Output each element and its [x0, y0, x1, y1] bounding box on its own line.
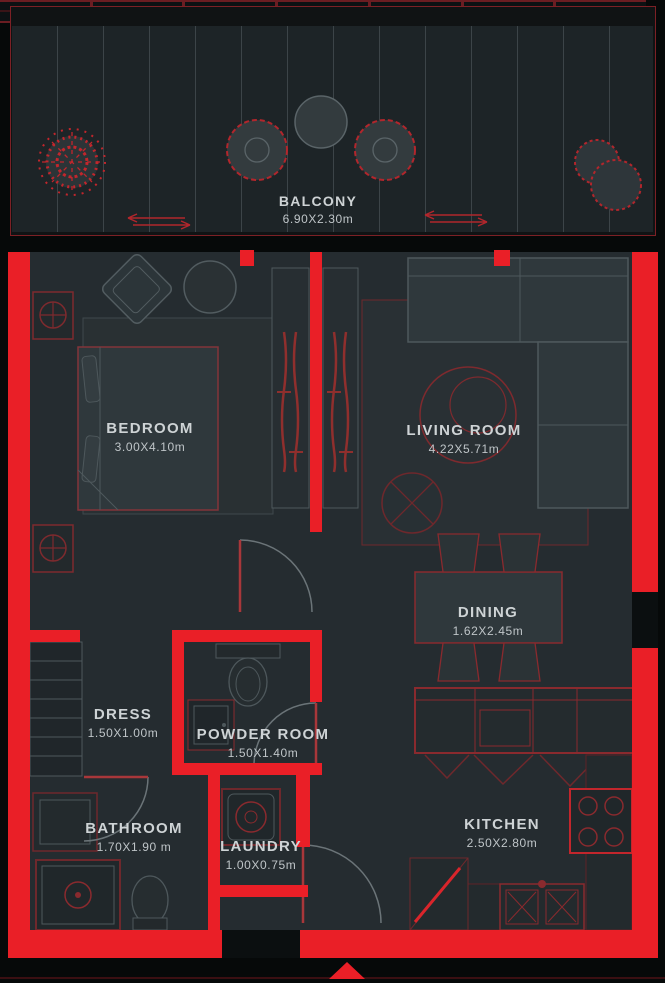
stove-icon: [570, 789, 632, 853]
wall-left: [8, 252, 30, 958]
room-dims: 6.90X2.30m: [279, 212, 357, 226]
shower-icon: [36, 860, 120, 930]
potted-plant-icon: [355, 120, 415, 180]
room-dims: 1.70X1.90 m: [85, 840, 183, 854]
room-dims: 3.00X4.10m: [106, 440, 193, 454]
wardrobe: [272, 268, 309, 508]
wall-powder-top: [172, 630, 322, 642]
room-label-kitchen: KITCHEN 2.50X2.80m: [464, 816, 540, 850]
door-arc: [303, 845, 381, 923]
toilet-icon: [216, 644, 280, 706]
room-label-powder-room: POWDER ROOM 1.50X1.40m: [197, 726, 330, 760]
room-label-laundry: LAUNDRY 1.00X0.75m: [220, 838, 302, 872]
room-name: POWDER ROOM: [197, 726, 330, 743]
room-dims: 1.62X2.45m: [453, 624, 524, 638]
shrub-icon: [575, 140, 641, 210]
sink-icon: [468, 880, 584, 930]
wall-powder-bottom: [172, 763, 322, 775]
room-name: DINING: [453, 604, 524, 621]
wall-powder-left: [172, 630, 184, 775]
room-name: BEDROOM: [106, 420, 193, 437]
room-dims: 2.50X2.80m: [464, 836, 540, 850]
entrance-gap: [222, 930, 300, 958]
room-name: KITCHEN: [464, 816, 540, 833]
wall-dress-stub: [30, 630, 80, 642]
room-dims: 1.50X1.40m: [197, 746, 330, 760]
nightstand: [33, 525, 73, 572]
room-name: BALCONY: [279, 193, 357, 209]
upper-cabinet-marks: [425, 755, 600, 786]
wall-entry-pier: [296, 775, 310, 847]
kitchen-counter: [415, 688, 637, 753]
room-label-balcony: BALCONY 6.90X2.30m: [279, 193, 357, 226]
wall-middle: [310, 252, 322, 532]
floor-plan: BALCONY 6.90X2.30m BEDROOM 3.00X4.10m LI…: [0, 0, 665, 983]
wall-laundry-bottom: [208, 885, 308, 897]
room-dims: 4.22X5.71m: [406, 442, 521, 456]
window-gap-right: [632, 592, 658, 648]
room-label-dining: DINING 1.62X2.45m: [453, 604, 524, 638]
side-table: [184, 261, 236, 313]
wall-pier: [240, 250, 254, 266]
wall-bottom: [8, 930, 658, 958]
nightstand: [33, 292, 73, 339]
washer-icon: [222, 789, 280, 845]
planter-icon: [295, 96, 347, 148]
room-dims: 1.50X1.00m: [88, 726, 159, 740]
armchair: [100, 252, 174, 326]
room-label-dress: DRESS 1.50X1.00m: [88, 706, 159, 740]
room-label-living-room: LIVING ROOM 4.22X5.71m: [406, 422, 521, 456]
room-name: DRESS: [88, 706, 159, 723]
corner-cabinet: [410, 858, 468, 930]
door-arc: [240, 540, 312, 612]
room-name: LAUNDRY: [220, 838, 302, 855]
room-label-bedroom: BEDROOM 3.00X4.10m: [106, 420, 193, 454]
room-name: BATHROOM: [85, 820, 183, 837]
wall-pier: [494, 250, 510, 266]
room-dims: 1.00X0.75m: [220, 858, 302, 872]
plant-icon: [39, 129, 105, 195]
round-chair: [382, 473, 442, 533]
toilet-icon: [132, 876, 168, 930]
room-label-bathroom: BATHROOM 1.70X1.90 m: [85, 820, 183, 854]
wardrobe: [323, 268, 358, 508]
shelf-unit: [30, 642, 82, 776]
wall-powder-right: [310, 630, 322, 702]
potted-plant-icon: [227, 120, 287, 180]
wall-laundry-left: [208, 775, 220, 930]
entrance-arrow-icon: [329, 962, 365, 979]
room-name: LIVING ROOM: [406, 422, 521, 439]
